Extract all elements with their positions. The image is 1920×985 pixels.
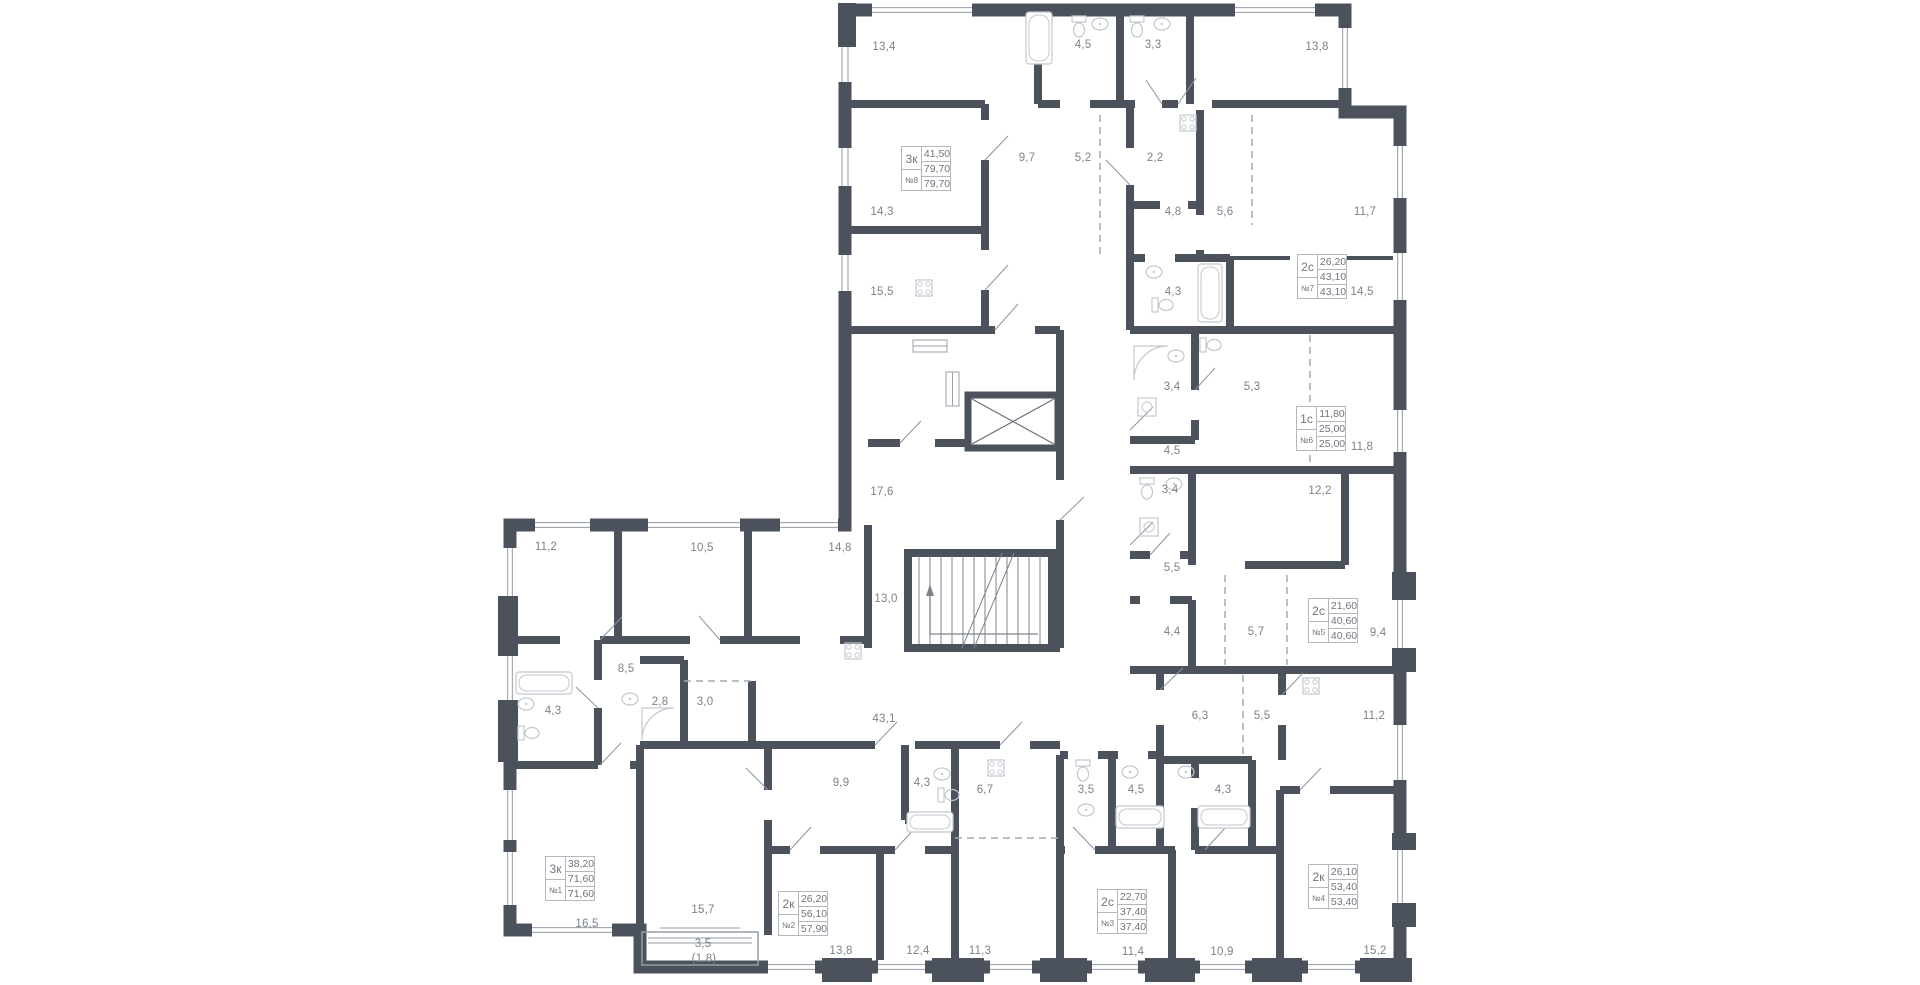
apartment-info-box-2[interactable]: 2к№226,2056,1057,90 (778, 891, 828, 936)
apartment-type: 2к (779, 893, 798, 914)
room-area-label: 14,3 (870, 206, 893, 218)
apartment-type: 2к (1309, 866, 1328, 887)
room-area-label: (1,8) (692, 953, 717, 965)
apartment-total-area: 71,60 (566, 887, 596, 901)
radiators (913, 340, 959, 406)
room-area-label: 5,5 (1164, 562, 1181, 574)
floor-plan-page: 13,44,53,313,89,75,22,214,315,54,85,611,… (0, 0, 1920, 985)
room-area-label: 10,5 (690, 542, 713, 554)
apartment-area: 40,60 (1329, 614, 1359, 628)
apartment-total-area: 53,40 (1329, 895, 1359, 909)
apartment-total-area: 40,60 (1329, 629, 1359, 643)
dashed-partitions (684, 115, 1310, 838)
room-area-label: 2,8 (652, 696, 669, 708)
room-area-label: 3,4 (1164, 381, 1181, 393)
apartment-total-area: 57,90 (799, 922, 829, 936)
room-area-label: 4,5 (1128, 784, 1145, 796)
room-area-label: 4,5 (1164, 445, 1181, 457)
apartment-number: №1 (546, 880, 565, 901)
room-area-label: 13,4 (872, 41, 895, 53)
room-area-label: 11,2 (535, 541, 557, 553)
room-area-label: 6,3 (1192, 710, 1209, 722)
apartment-area: 53,40 (1329, 880, 1359, 894)
room-area-label: 5,6 (1217, 206, 1234, 218)
apartment-type: 3к (902, 148, 921, 169)
apartment-info-box-7[interactable]: 2с№726,2043,1043,10 (1297, 254, 1347, 299)
room-area-label: 13,8 (829, 945, 852, 957)
room-area-label: 4,3 (545, 705, 562, 717)
room-area-label: 3,4 (1162, 484, 1179, 496)
apartment-number: №5 (1309, 622, 1328, 643)
apartment-living-area: 22,70 (1118, 890, 1148, 904)
floor-plan (0, 0, 1920, 985)
room-area-label: 5,2 (1075, 152, 1092, 164)
room-area-label: 13,8 (1305, 41, 1328, 53)
apartment-type: 2с (1298, 256, 1317, 277)
room-area-label: 13,0 (874, 593, 897, 605)
room-area-label: 14,5 (1350, 286, 1373, 298)
interior-walls (510, 10, 1400, 967)
apartment-number: №4 (1309, 888, 1328, 909)
room-area-label: 11,4 (1122, 946, 1144, 958)
apartment-type: 1с (1297, 408, 1316, 429)
apartment-type: 2с (1309, 600, 1328, 621)
room-area-label: 15,5 (870, 286, 893, 298)
room-area-label: 4,3 (1165, 286, 1182, 298)
apartment-area: 56,10 (799, 907, 829, 921)
apartment-info-box-5[interactable]: 2с№521,6040,6040,60 (1308, 598, 1358, 643)
apartment-type: 2с (1098, 891, 1117, 912)
apartment-area: 25,00 (1317, 422, 1347, 436)
room-area-label: 12,2 (1308, 485, 1331, 497)
apartment-info-box-4[interactable]: 2к№426,1053,4053,40 (1308, 864, 1358, 909)
apartment-living-area: 26,10 (1329, 865, 1359, 879)
apartment-total-area: 25,00 (1317, 437, 1347, 451)
apartment-info-box-1[interactable]: 3к№138,2071,6071,60 (545, 856, 595, 901)
room-area-label: 11,8 (1351, 441, 1373, 453)
apartment-area: 37,40 (1118, 905, 1148, 919)
room-area-label: 11,2 (1363, 710, 1385, 722)
room-area-label: 2,2 (1147, 152, 1164, 164)
room-area-label: 3,5 (695, 938, 712, 950)
apartment-living-area: 26,20 (1318, 255, 1348, 269)
room-area-label: 5,5 (1254, 710, 1271, 722)
room-area-label: 43,1 (872, 713, 895, 725)
apartment-info-box-8[interactable]: 3к№841,5079,7079,70 (901, 146, 951, 191)
apartment-info-box-6[interactable]: 1с№611,8025,0025,00 (1296, 406, 1346, 451)
apartment-area: 43,10 (1318, 270, 1348, 284)
room-area-label: 4,3 (1215, 784, 1232, 796)
apartment-living-area: 41,50 (922, 147, 952, 161)
room-area-label: 6,7 (977, 784, 994, 796)
room-area-label: 4,5 (1075, 39, 1092, 51)
apartment-living-area: 11,80 (1317, 407, 1347, 421)
room-area-label: 9,4 (1370, 627, 1387, 639)
room-area-label: 15,7 (691, 904, 714, 916)
staircase (908, 553, 1052, 648)
room-area-label: 11,7 (1354, 206, 1376, 218)
apartment-number: №2 (779, 915, 798, 936)
apartment-number: №7 (1298, 278, 1317, 299)
room-area-label: 14,8 (828, 542, 851, 554)
room-area-label: 4,4 (1164, 626, 1181, 638)
apartment-area: 71,60 (566, 872, 596, 886)
room-area-label: 10,9 (1210, 946, 1233, 958)
room-area-label: 9,7 (1019, 152, 1036, 164)
apartment-number: №3 (1098, 913, 1117, 934)
apartment-number: №8 (902, 170, 921, 191)
room-area-label: 16,5 (575, 918, 598, 930)
apartment-total-area: 79,70 (922, 177, 952, 191)
apartment-area: 79,70 (922, 162, 952, 176)
room-area-label: 3,3 (1145, 39, 1162, 51)
room-area-label: 3,5 (1078, 784, 1095, 796)
apartment-number: №6 (1297, 430, 1316, 451)
apartment-total-area: 43,10 (1318, 285, 1348, 299)
apartment-info-box-3[interactable]: 2с№322,7037,4037,40 (1097, 889, 1147, 934)
elevator-shaft (968, 395, 1058, 448)
room-area-label: 17,6 (870, 486, 893, 498)
room-area-label: 4,8 (1165, 206, 1182, 218)
room-area-label: 5,7 (1248, 626, 1265, 638)
apartment-total-area: 37,40 (1118, 920, 1148, 934)
room-area-label: 5,3 (1244, 381, 1261, 393)
room-area-label: 11,3 (969, 945, 991, 957)
room-area-label: 12,4 (906, 945, 929, 957)
room-area-label: 4,3 (914, 777, 931, 789)
room-area-label: 15,2 (1363, 945, 1386, 957)
room-area-label: 3,0 (697, 696, 714, 708)
apartment-living-area: 38,20 (566, 857, 596, 871)
apartment-living-area: 26,20 (799, 892, 829, 906)
room-area-label: 9,9 (833, 777, 850, 789)
room-area-label: 8,5 (618, 663, 635, 675)
apartment-type: 3к (546, 858, 565, 879)
apartment-living-area: 21,60 (1329, 599, 1359, 613)
